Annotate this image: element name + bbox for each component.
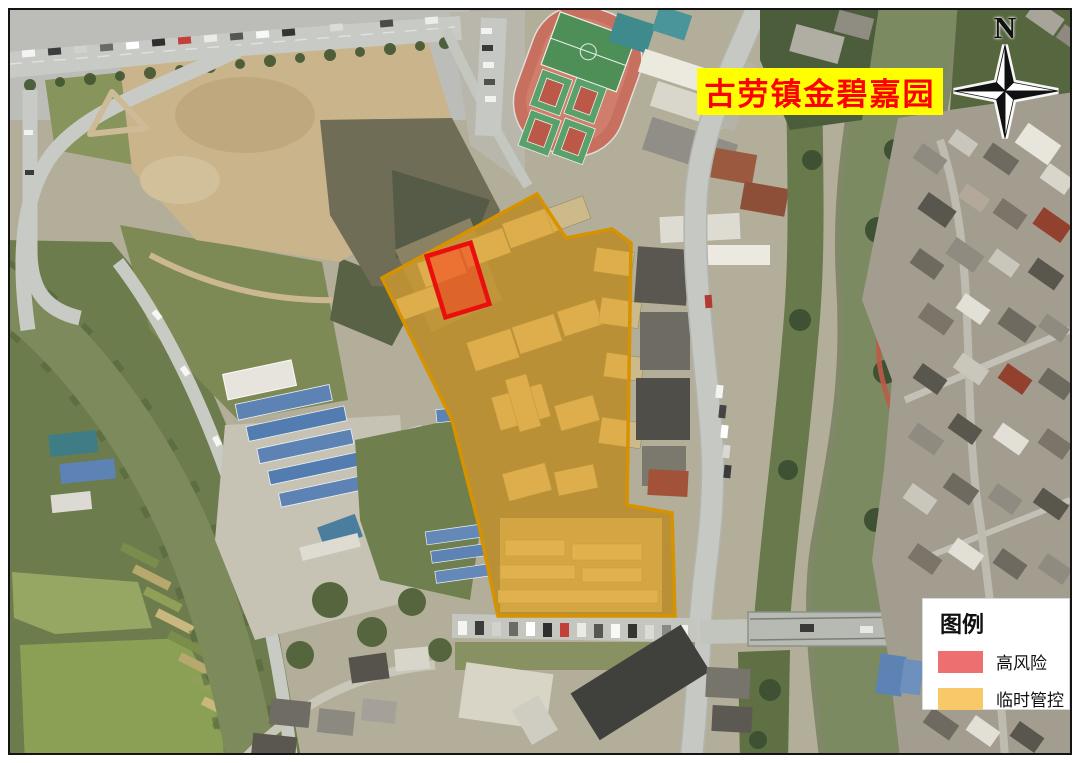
map-figure: 古劳镇金碧嘉园 N 图例 高风险 临时管控 [0, 0, 1080, 763]
north-arrow-icon [950, 41, 1060, 145]
satellite-basemap [8, 8, 1072, 755]
legend: 图例 高风险 临时管控 [922, 598, 1070, 710]
compass: N [950, 12, 1060, 145]
map-title: 古劳镇金碧嘉园 [705, 69, 936, 114]
legend-label-high-risk: 高风险 [996, 649, 1047, 674]
legend-item-temp-control: 临时管控 [938, 686, 1069, 711]
legend-item-high-risk: 高风险 [938, 649, 1069, 674]
map-frame [8, 8, 1072, 755]
legend-swatch-temp-control [938, 688, 983, 710]
title-banner: 古劳镇金碧嘉园 [697, 68, 943, 115]
legend-swatch-high-risk [938, 651, 983, 673]
compass-north-label: N [950, 12, 1060, 43]
legend-title: 图例 [940, 607, 1069, 639]
legend-label-temp-control: 临时管控 [996, 686, 1064, 711]
